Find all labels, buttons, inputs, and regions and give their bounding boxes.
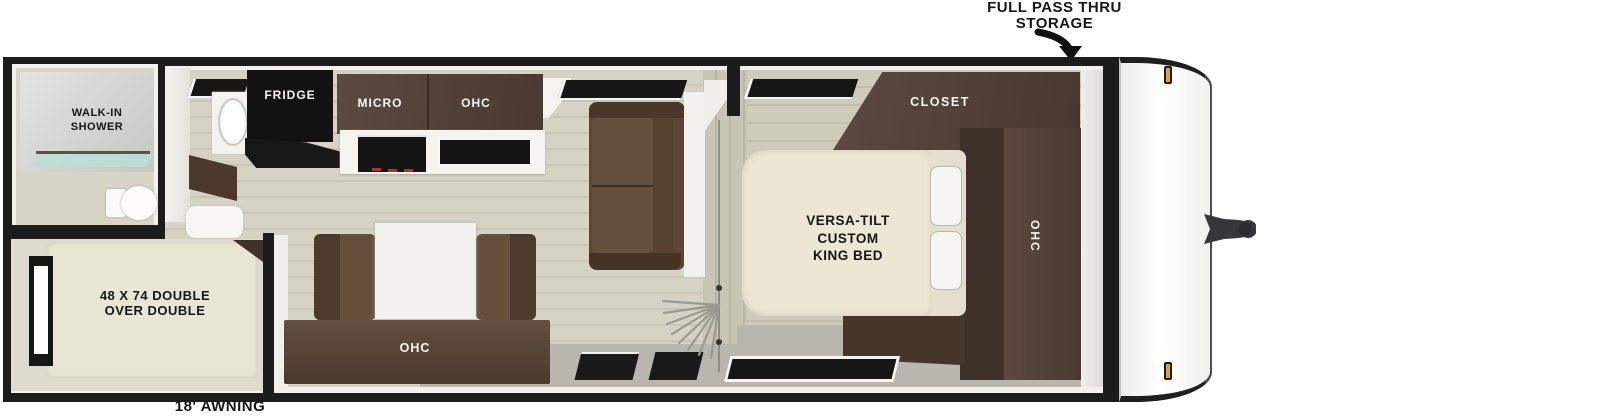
kitchen-cabinet-seam	[427, 74, 429, 134]
walk-in-shower-label: WALK-IN SHOWER	[38, 106, 156, 134]
shower-glass	[34, 154, 154, 167]
bed-pillow	[930, 166, 962, 226]
partition-wall-stub	[727, 66, 740, 116]
king-bed-label: VERSA-TILT CUSTOM KING BED	[768, 212, 928, 265]
bunk-bed-label: 48 X 74 DOUBLE OVER DOUBLE	[45, 288, 265, 318]
range-cooktop	[358, 135, 426, 172]
fridge	[247, 70, 333, 142]
front-wall	[1103, 57, 1119, 402]
sofa-seat-edge	[653, 118, 673, 253]
dinette-bench-right-back	[510, 234, 536, 320]
vanity-sink-basin	[218, 98, 248, 146]
dinette-bench-left-back	[314, 234, 340, 320]
micro-label: MICRO	[345, 96, 415, 110]
marker-light	[1164, 362, 1172, 380]
closet-label: CLOSET	[900, 95, 980, 109]
bed-pillow	[930, 231, 962, 290]
entry-door-swing-icon	[655, 280, 725, 375]
front-cap	[1119, 57, 1212, 402]
bunk-pillow	[186, 206, 243, 238]
dinette-table	[375, 223, 476, 319]
dinette-ohc-label: OHC	[370, 341, 460, 355]
bedroom-window-top	[744, 79, 858, 99]
sofa-armrest-bottom	[589, 253, 681, 270]
entry-step	[575, 352, 640, 380]
kitchen-ohc-label: OHC	[441, 96, 511, 110]
range-knob	[372, 168, 381, 171]
range-knob	[404, 169, 413, 172]
fridge-label: FRIDGE	[252, 88, 328, 102]
marker-light	[1164, 66, 1172, 84]
floorplan-canvas: FULL PASS THRU STORAGE 18' AWNING WALK-I…	[0, 0, 1600, 416]
kitchen-sink	[437, 137, 533, 167]
wardrobe-front-panel	[960, 128, 1004, 380]
bedroom-ohc-label: OHC	[1022, 206, 1042, 266]
bedroom-ohc	[1004, 128, 1081, 380]
partition-wall	[684, 92, 705, 277]
tongue-hitch-icon	[1200, 208, 1256, 250]
bedroom-window-bottom	[724, 356, 900, 382]
pass-thru-storage-area	[1081, 70, 1103, 387]
bunk-room-top-wall	[5, 225, 165, 239]
toilet-bowl	[121, 186, 157, 220]
bathroom-entry-wall-face	[165, 68, 190, 222]
sofa-armrest-top	[589, 102, 685, 118]
range-knob	[388, 169, 397, 172]
living-window	[557, 80, 687, 100]
